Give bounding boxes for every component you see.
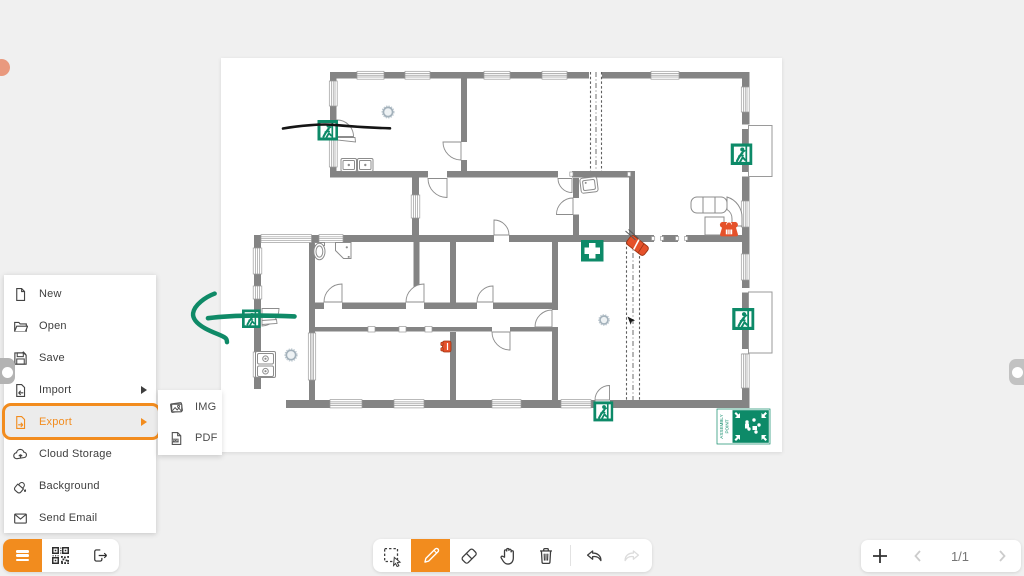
svg-text:POINT: POINT xyxy=(724,419,729,433)
svg-text:PDF: PDF xyxy=(172,438,178,442)
svg-text:ASSEMBLY: ASSEMBLY xyxy=(719,414,724,438)
